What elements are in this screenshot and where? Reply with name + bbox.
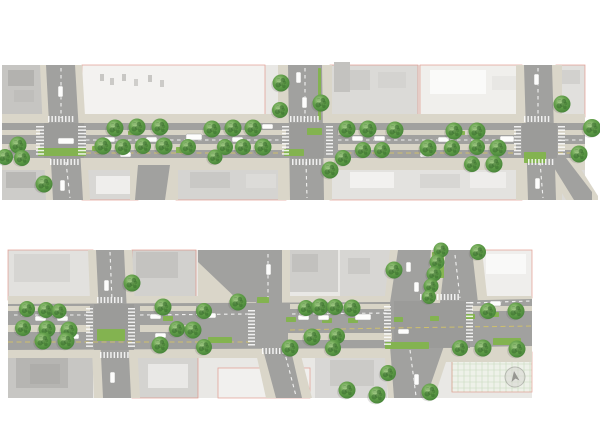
crosswalk-bar (326, 143, 333, 145)
crosswalk-bar (282, 140, 289, 142)
crosswalk-bar (558, 150, 565, 152)
crosswalk-bar (114, 352, 116, 358)
crosswalk-bar (282, 143, 289, 145)
crosswalk-bar (104, 297, 106, 303)
crosswalk-bar (384, 326, 391, 328)
crosswalk-bar (107, 297, 109, 303)
crosswalk-bar (36, 153, 44, 155)
crosswalk-bar (248, 341, 255, 343)
vehicle (58, 138, 74, 144)
crosswalk-bar (86, 322, 93, 324)
crosswalk-bar (282, 146, 289, 148)
crosswalk-bar (128, 332, 135, 334)
crosswalk-bar (86, 339, 93, 341)
crosswalk-bar (514, 129, 521, 131)
crosswalk-bar (282, 133, 289, 135)
roof-patch (100, 74, 104, 81)
vehicle (374, 136, 385, 141)
roof-patch (378, 72, 406, 88)
crosswalk-bar (326, 133, 333, 135)
crosswalk-bar (36, 126, 44, 128)
crosswalk-bar (128, 345, 135, 347)
crosswalk-bar (466, 333, 473, 335)
crosswalk-bar (78, 150, 86, 152)
crosswalk-bar (67, 159, 69, 165)
crosswalk-bar (68, 116, 70, 122)
crosswalk-bar (514, 153, 521, 155)
crosswalk-bar (72, 116, 74, 122)
crosswalk-bar (552, 159, 554, 165)
vehicle (262, 124, 273, 129)
crosswalk-bar (78, 126, 86, 128)
vehicle (110, 372, 115, 383)
crosswalk-bar (282, 150, 289, 152)
crosswalk-bar (558, 153, 565, 155)
crosswalk-bar (326, 153, 333, 155)
crosswalk-bar (114, 297, 116, 303)
road (256, 250, 282, 305)
vehicle (535, 178, 540, 189)
green-bike-lane (257, 297, 269, 303)
vehicle (58, 86, 63, 97)
crosswalk-bar (437, 294, 439, 300)
crosswalk-bar (265, 348, 267, 354)
crosswalk-bar (128, 339, 135, 341)
vehicle (414, 282, 419, 292)
crosswalk-bar (86, 328, 93, 330)
crosswalk-bar (64, 159, 66, 165)
crosswalk-bar (269, 348, 271, 354)
crosswalk-bar (527, 116, 529, 122)
crosswalk-bar (51, 116, 53, 122)
crosswalk-bar (86, 335, 93, 337)
roof-patch (148, 75, 152, 82)
crosswalk-bar (53, 159, 55, 165)
crosswalk-bar (558, 136, 565, 138)
roof-patch (110, 78, 114, 85)
crosswalk-bar (384, 323, 391, 325)
crosswalk-bar (86, 342, 93, 344)
crosswalk-bar (384, 306, 391, 308)
crosswalk-bar (103, 352, 105, 358)
crosswalk-bar (248, 313, 255, 315)
roof-patch (122, 74, 126, 81)
crosswalk-bar (248, 324, 255, 326)
crosswalk-bar (86, 311, 93, 313)
vehicle (398, 329, 409, 334)
crosswalk-bar (314, 116, 316, 122)
roof-patch (492, 76, 516, 90)
crosswalk-bar (466, 312, 473, 314)
roof-patch (8, 70, 34, 86)
crosswalk-bar (128, 315, 135, 317)
roof-patch (190, 172, 230, 188)
crosswalk-bar (444, 294, 446, 300)
crosswalk-bar (326, 136, 333, 138)
crosswalk-bar (62, 116, 64, 122)
green-bike-lane (307, 128, 322, 135)
vehicle (104, 280, 109, 291)
crosswalk-bar (272, 348, 274, 354)
roof-patch (6, 172, 36, 188)
compass-arrow-icon (505, 367, 525, 387)
crosswalk-bar (514, 150, 521, 152)
crosswalk-bar (127, 352, 129, 358)
crosswalk-bar (541, 116, 543, 122)
crosswalk-bar (128, 342, 135, 344)
crosswalk-bar (248, 344, 255, 346)
crosswalk-bar (262, 348, 264, 354)
crosswalk-bar (514, 126, 521, 128)
crosswalk-bar (558, 140, 565, 142)
corridor-segment-1 (2, 62, 598, 200)
crosswalk-bar (50, 159, 52, 165)
crosswalk-bar (528, 159, 530, 165)
crosswalk-bar (384, 343, 391, 345)
crosswalk-bar (248, 337, 255, 339)
crosswalk-bar (128, 335, 135, 337)
crosswalk-bar (282, 126, 289, 128)
roof-patch (14, 254, 70, 282)
crosswalk-bar (36, 146, 44, 148)
roof-patch (486, 254, 526, 274)
crosswalk-bar (57, 159, 59, 165)
planting-median (2, 130, 40, 135)
green-bike-lane (394, 317, 403, 322)
crosswalk-bar (97, 297, 99, 303)
crosswalk-bar (384, 316, 391, 318)
green-bike-lane (163, 316, 173, 321)
crosswalk-bar (558, 143, 565, 145)
crosswalk-bar (128, 322, 135, 324)
crosswalk-bar (538, 159, 540, 165)
crosswalk-bar (36, 129, 44, 131)
vehicle (302, 97, 307, 108)
crosswalk-bar (514, 133, 521, 135)
crosswalk-bar (86, 325, 93, 327)
crosswalk-bar (292, 159, 294, 165)
crosswalk-bar (538, 116, 540, 122)
crosswalk-bar (117, 297, 119, 303)
crosswalk-bar (60, 159, 62, 165)
crosswalk-bar (282, 136, 289, 138)
crosswalk-bar (276, 348, 278, 354)
crosswalk-bar (121, 297, 123, 303)
crosswalk-bar (531, 116, 533, 122)
crosswalk-bar (111, 297, 113, 303)
crosswalk-bar (117, 352, 119, 358)
vehicle (355, 314, 371, 320)
vehicle (266, 264, 271, 275)
crosswalk-bar (282, 153, 289, 155)
crosswalk-bar (384, 340, 391, 342)
crosswalk-bar (447, 294, 449, 300)
crosswalk-bar (454, 294, 456, 300)
crosswalk-bar (545, 159, 547, 165)
crosswalk-bar (466, 305, 473, 307)
green-bike-lane (97, 329, 125, 341)
crosswalk-bar (466, 336, 473, 338)
crosswalk-bar (36, 140, 44, 142)
crosswalk-bar (300, 116, 302, 122)
crosswalk-bar (466, 319, 473, 321)
roof-patch (420, 174, 460, 188)
crosswalk-bar (282, 129, 289, 131)
vehicle (534, 74, 539, 85)
crosswalk-bar (78, 143, 86, 145)
crosswalk-bar (128, 308, 135, 310)
crosswalk-bar (248, 310, 255, 312)
crosswalk-bar (326, 129, 333, 131)
green-bike-lane (286, 317, 296, 322)
crosswalk-bar (384, 320, 391, 322)
crosswalk-bar (77, 159, 79, 165)
crosswalk-bar (78, 129, 86, 131)
crosswalk-bar (514, 140, 521, 142)
crosswalk-bar (36, 143, 44, 145)
roof-patch (334, 62, 350, 92)
roof-patch (430, 70, 486, 94)
crosswalk-bar (78, 140, 86, 142)
crosswalk-bar (319, 159, 321, 165)
crosswalk-bar (110, 352, 112, 358)
crosswalk-bar (384, 309, 391, 311)
roof-patch (96, 176, 130, 194)
crosswalk-bar (384, 330, 391, 332)
roof-patch (560, 70, 580, 84)
crosswalk-bar (384, 337, 391, 339)
green-bike-lane (385, 342, 429, 349)
roof-patch (134, 79, 138, 86)
crosswalk-bar (86, 308, 93, 310)
corridor-segment-2 (8, 250, 532, 398)
crosswalk-bar (128, 325, 135, 327)
roof-patch (330, 360, 374, 386)
crosswalk-bar (297, 116, 299, 122)
crosswalk-bar (514, 146, 521, 148)
road (135, 165, 170, 200)
crosswalk-bar (466, 339, 473, 341)
crosswalk-bar (36, 133, 44, 135)
crosswalk-bar (128, 311, 135, 313)
crosswalk-bar (558, 133, 565, 135)
crosswalk-bar (309, 159, 311, 165)
crosswalk-bar (558, 129, 565, 131)
crosswalk-bar (326, 146, 333, 148)
aerial-plan-svg (0, 0, 600, 440)
crosswalk-bar (534, 116, 536, 122)
crosswalk-bar (78, 146, 86, 148)
vehicle (414, 374, 419, 385)
crosswalk-bar (36, 150, 44, 152)
green-bike-lane (208, 337, 232, 343)
crosswalk-bar (548, 116, 550, 122)
roof-patch (246, 174, 276, 188)
crosswalk-bar (466, 329, 473, 331)
roof-patch (14, 90, 34, 102)
crosswalk-bar (58, 116, 60, 122)
roof-patch (350, 172, 394, 188)
streetscape-plan-canvas (0, 0, 600, 440)
crosswalk-bar (326, 126, 333, 128)
crosswalk-bar (74, 159, 76, 165)
crosswalk-bar (326, 150, 333, 152)
crosswalk-bar (451, 294, 453, 300)
crosswalk-bar (86, 332, 93, 334)
crosswalk-bar (316, 159, 318, 165)
crosswalk-bar (86, 315, 93, 317)
crosswalk-bar (100, 352, 102, 358)
crosswalk-bar (531, 159, 533, 165)
crosswalk-bar (514, 136, 521, 138)
crosswalk-bar (384, 333, 391, 335)
crosswalk-bar (312, 159, 314, 165)
crosswalk-bar (128, 318, 135, 320)
crosswalk-bar (248, 317, 255, 319)
crosswalk-bar (306, 159, 308, 165)
crosswalk-bar (307, 116, 309, 122)
crosswalk-bar (558, 126, 565, 128)
roof-patch (470, 172, 506, 188)
vehicle (406, 262, 411, 272)
crosswalk-bar (466, 322, 473, 324)
crosswalk-bar (317, 116, 319, 122)
roof-patch (160, 80, 164, 87)
crosswalk-bar (466, 309, 473, 311)
crosswalk-bar (384, 313, 391, 315)
crosswalk-bar (310, 116, 312, 122)
crosswalk-bar (124, 352, 126, 358)
vehicle (60, 180, 65, 191)
roof-patch (136, 252, 178, 278)
crosswalk-bar (290, 116, 292, 122)
crosswalk-bar (248, 320, 255, 322)
crosswalk-bar (107, 352, 109, 358)
crosswalk-bar (304, 116, 306, 122)
crosswalk-bar (36, 136, 44, 138)
vehicle (296, 72, 301, 83)
crosswalk-bar (78, 136, 86, 138)
crosswalk-bar (65, 116, 67, 122)
crosswalk-bar (48, 116, 50, 122)
roof-patch (30, 364, 60, 384)
roof-patch (348, 258, 370, 274)
green-bike-lane (38, 148, 86, 156)
crosswalk-bar (78, 153, 86, 155)
crosswalk-bar (86, 318, 93, 320)
crosswalk-bar (514, 143, 521, 145)
crosswalk-bar (70, 159, 72, 165)
crosswalk-bar (86, 345, 93, 347)
crosswalk-bar (120, 352, 122, 358)
crosswalk-bar (78, 133, 86, 135)
crosswalk-bar (100, 297, 102, 303)
crosswalk-bar (293, 116, 295, 122)
crosswalk-bar (457, 294, 459, 300)
crosswalk-bar (548, 159, 550, 165)
roof-patch (292, 254, 318, 272)
crosswalk-bar (440, 294, 442, 300)
crosswalk-bar (558, 146, 565, 148)
crosswalk-bar (466, 316, 473, 318)
crosswalk-bar (326, 140, 333, 142)
crosswalk-bar (544, 116, 546, 122)
crosswalk-bar (248, 334, 255, 336)
crosswalk-bar (55, 116, 57, 122)
crosswalk-bar (295, 159, 297, 165)
crosswalk-bar (466, 302, 473, 304)
crosswalk-bar (248, 330, 255, 332)
crosswalk-bar (542, 159, 544, 165)
crosswalk-bar (524, 116, 526, 122)
crosswalk-bar (248, 327, 255, 329)
crosswalk-bar (299, 159, 301, 165)
crosswalk-bar (466, 326, 473, 328)
building-block (82, 65, 265, 118)
crosswalk-bar (302, 159, 304, 165)
green-bike-lane (430, 316, 439, 321)
roof-patch (148, 364, 188, 388)
crosswalk-bar (128, 328, 135, 330)
crosswalk-bar (535, 159, 537, 165)
